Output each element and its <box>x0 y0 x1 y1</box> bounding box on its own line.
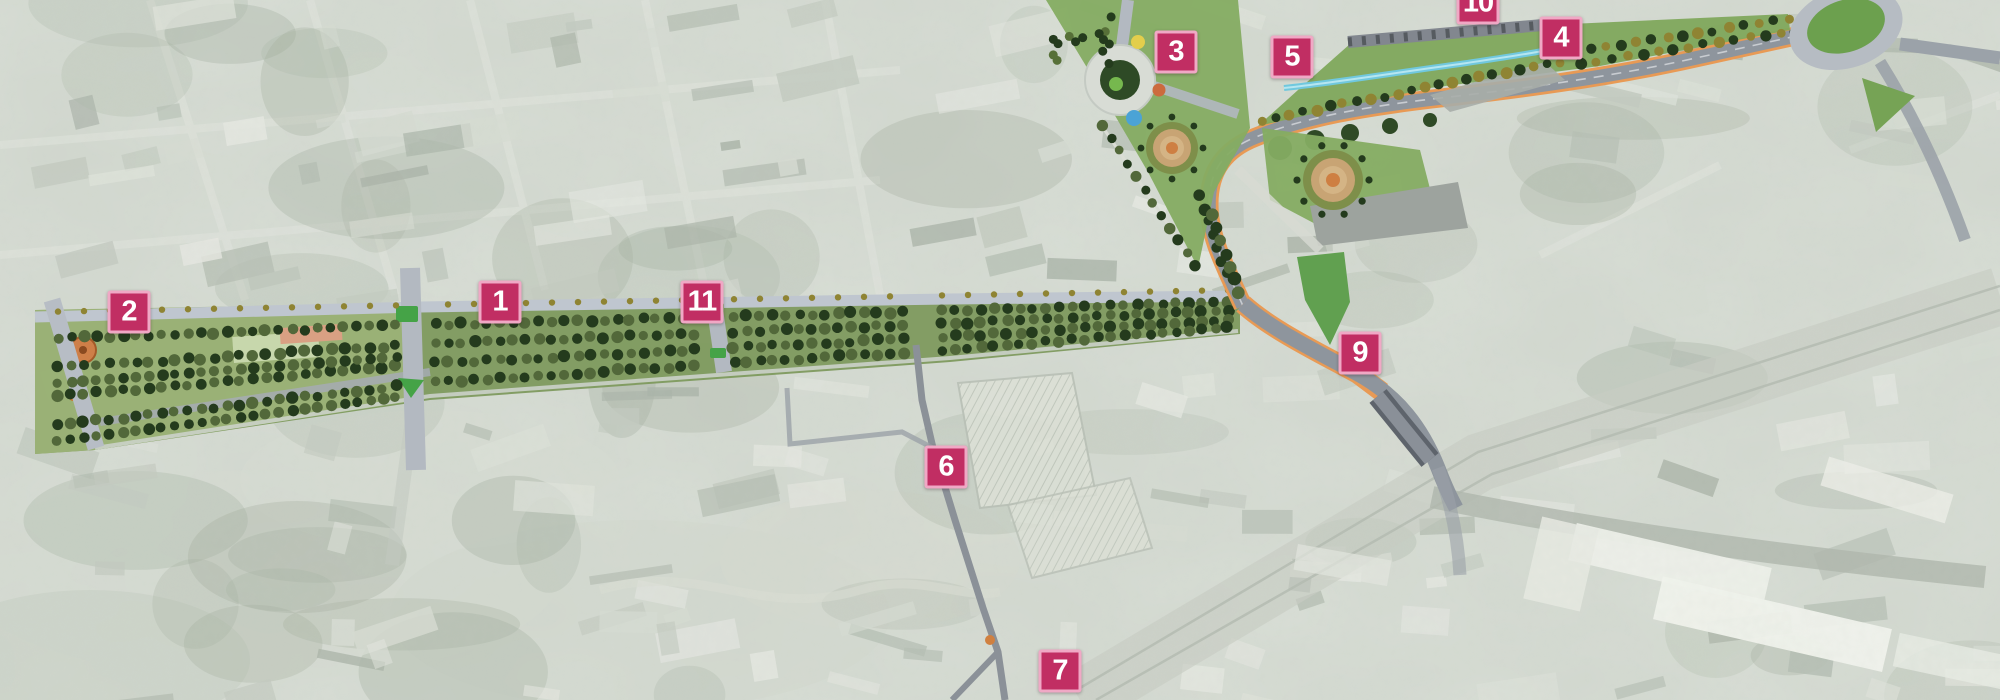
plaza-center <box>79 346 87 354</box>
red-feature-dot <box>1153 84 1166 97</box>
map-marker-9[interactable]: 9 <box>1339 332 1382 375</box>
map-marker-4[interactable]: 4 <box>1540 17 1583 60</box>
approach-road-north <box>1122 0 1128 46</box>
landscape-plan <box>0 0 2000 700</box>
map-marker-6[interactable]: 6 <box>925 446 968 489</box>
hatched-field <box>958 373 1152 578</box>
site-plan-map: 123456791011 <box>0 0 2000 700</box>
map-marker-5[interactable]: 5 <box>1271 36 1314 79</box>
ne-roundabout <box>1778 0 2000 240</box>
map-marker-3[interactable]: 3 <box>1155 31 1198 74</box>
road-fade <box>1438 468 1460 575</box>
traffic-island <box>710 348 726 358</box>
map-marker-2[interactable]: 2 <box>108 291 151 334</box>
southeast-road <box>1243 252 1460 575</box>
blue-feature-dot <box>1126 110 1142 126</box>
spiral-mound-1 <box>1138 114 1207 183</box>
map-marker-1[interactable]: 1 <box>479 281 522 324</box>
yellow-feature-dot <box>1131 35 1145 49</box>
traffic-island <box>396 306 418 322</box>
spiral-mound-2 <box>1238 128 1468 250</box>
map-marker-10[interactable]: 10 <box>1457 0 1500 25</box>
map-marker-7[interactable]: 7 <box>1039 650 1082 693</box>
exit-road-east <box>1900 44 2000 58</box>
map-marker-11[interactable]: 11 <box>681 281 724 324</box>
path-node <box>985 635 995 645</box>
island-highlight <box>1109 77 1123 91</box>
